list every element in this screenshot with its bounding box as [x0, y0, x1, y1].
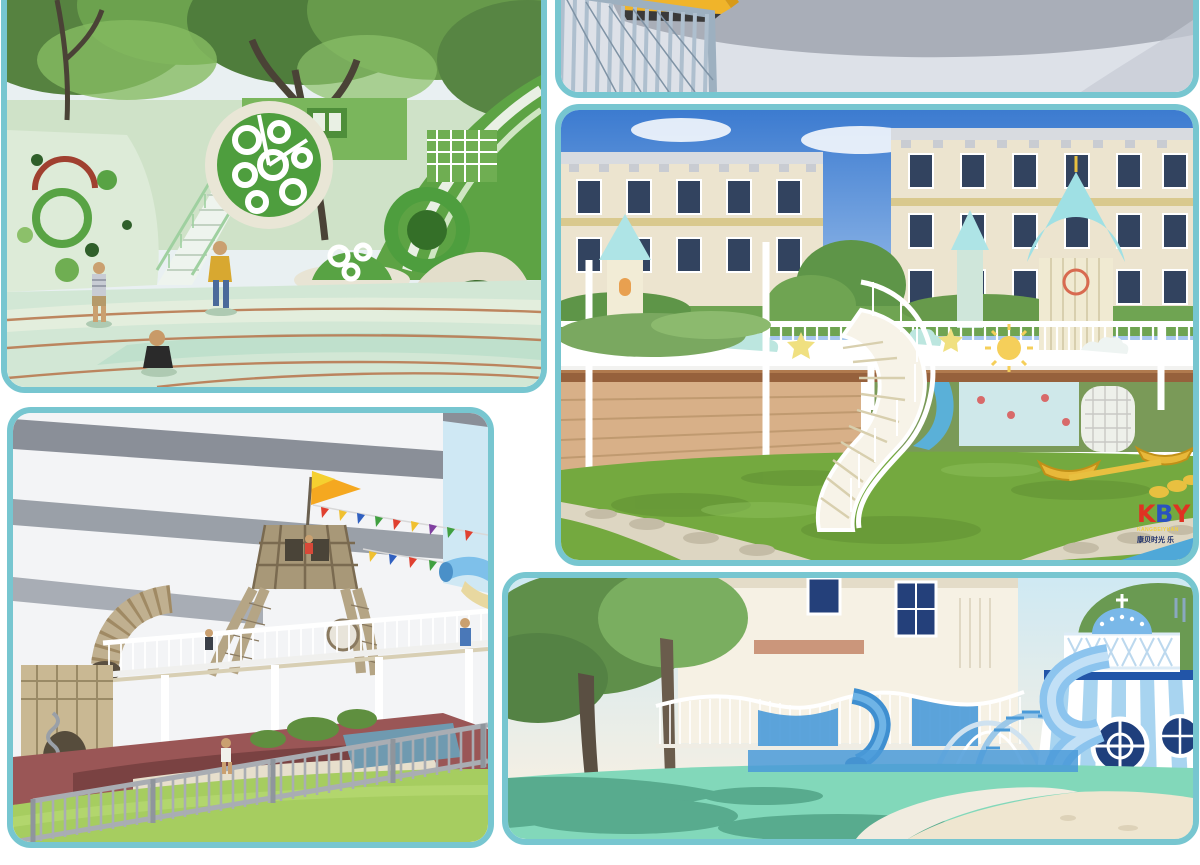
svg-text:KANGBEIYUAN: KANGBEIYUAN [1137, 527, 1179, 533]
courtyard-illustration: K B Y KANGBEIYUAN 康贝时光 乐 [561, 110, 1193, 560]
photo-courtyard-castle-playground: K B Y KANGBEIYUAN 康贝时光 乐 [555, 104, 1199, 566]
svg-text:K: K [1137, 500, 1157, 528]
photo-ship-net-climber [7, 407, 494, 848]
wheel-feature [205, 101, 333, 229]
photo-green-forest-playground [1, 0, 547, 393]
santorini-illustration [508, 578, 1193, 839]
photo-santorini-blue-playground [502, 572, 1199, 845]
ship-playground-illustration [13, 413, 488, 842]
play-ground-surface [7, 280, 541, 387]
svg-text:康贝时光 乐: 康贝时光 乐 [1137, 535, 1174, 544]
photo-plaza-strip [555, 0, 1199, 98]
plaza-strip-illustration [561, 0, 1193, 92]
blue-safety-floor [748, 750, 1078, 772]
green-playground-illustration [7, 0, 541, 387]
svg-text:Y: Y [1172, 500, 1191, 528]
svg-text:B: B [1155, 500, 1173, 528]
net-tunnel [1081, 386, 1135, 452]
climbing-wall [7, 130, 159, 292]
playground-photo-collage: K B Y KANGBEIYUAN 康贝时光 乐 [0, 0, 1200, 865]
